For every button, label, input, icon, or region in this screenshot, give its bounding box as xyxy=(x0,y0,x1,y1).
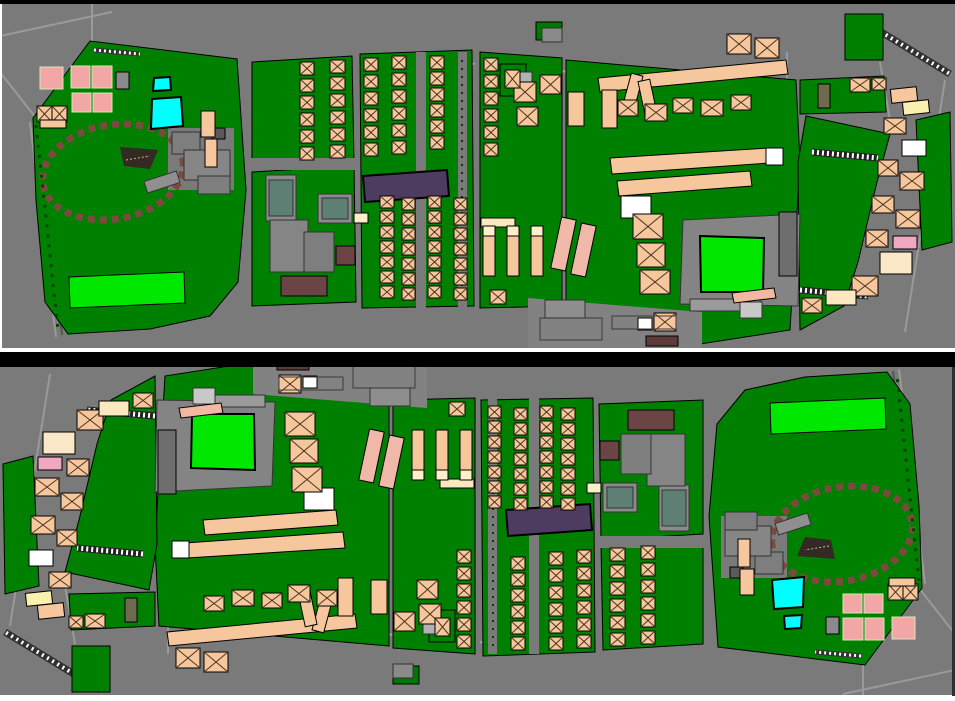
top-panel-view xyxy=(0,4,955,348)
campus-3d-render xyxy=(0,0,955,701)
campus-render-window xyxy=(0,0,955,701)
bottom-panel-view xyxy=(0,358,955,701)
